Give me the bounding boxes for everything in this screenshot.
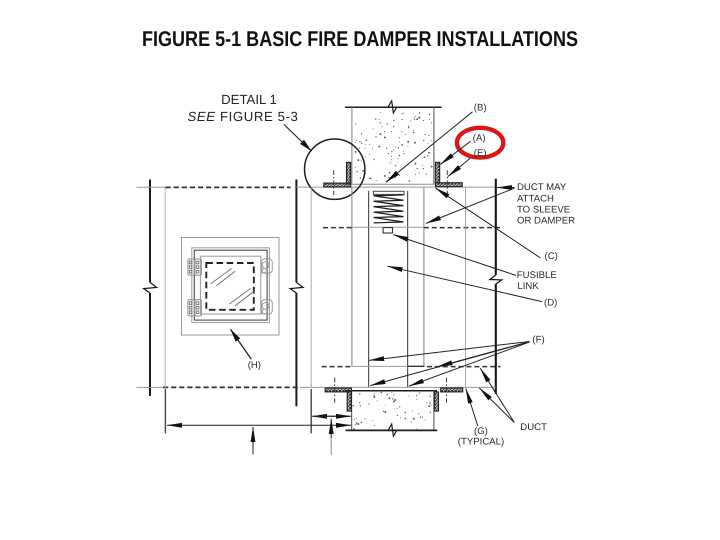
svg-text:(B): (B) [474, 103, 487, 114]
svg-text:OR DAMPER: OR DAMPER [517, 215, 575, 226]
svg-text:(C): (C) [545, 251, 558, 262]
svg-text:ATTACH: ATTACH [517, 193, 554, 204]
svg-text:DETAIL 1: DETAIL 1 [221, 92, 277, 107]
svg-text:(A): (A) [473, 133, 486, 144]
svg-text:(G): (G) [474, 426, 488, 437]
svg-text:DUCT MAY: DUCT MAY [517, 182, 567, 193]
svg-text:DUCT: DUCT [520, 422, 547, 433]
svg-text:TO SLEEVE: TO SLEEVE [517, 204, 570, 215]
svg-text:FUSIBLE: FUSIBLE [517, 270, 557, 281]
svg-text:(D): (D) [544, 298, 557, 309]
svg-text:(E): (E) [474, 148, 487, 159]
svg-text:LINK: LINK [517, 281, 539, 292]
svg-text:(H): (H) [248, 360, 261, 371]
svg-text:(TYPICAL): (TYPICAL) [458, 436, 504, 447]
svg-text:FIGURE 5-1 BASIC FIRE DAMPER I: FIGURE 5-1 BASIC FIRE DAMPER INSTALLATIO… [142, 27, 578, 51]
svg-text:SEE FIGURE 5-3: SEE FIGURE 5-3 [187, 109, 298, 124]
svg-text:(F): (F) [532, 335, 544, 346]
